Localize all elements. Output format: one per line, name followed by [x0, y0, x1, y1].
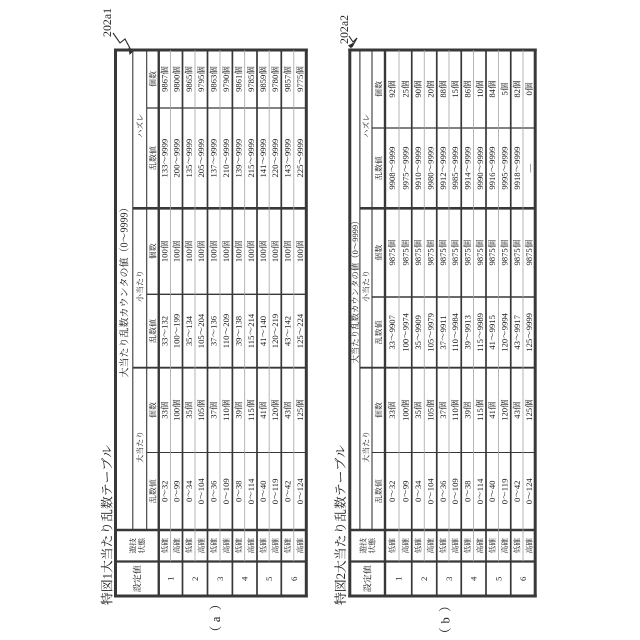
svg-text:37: 37: [438, 340, 448, 349]
svg-text:9916: 9916: [487, 172, 497, 190]
svg-text:9865: 9865: [184, 75, 194, 92]
svg-text:199: 199: [172, 314, 182, 327]
svg-text:36: 36: [438, 480, 448, 489]
svg-text:1: 1: [393, 577, 403, 581]
svg-text:120: 120: [270, 335, 280, 348]
svg-text:119: 119: [270, 479, 280, 492]
svg-text:41: 41: [258, 338, 268, 347]
svg-text:40: 40: [487, 481, 497, 490]
svg-text:9795: 9795: [196, 75, 206, 92]
svg-text:35: 35: [413, 410, 423, 419]
svg-text:0: 0: [462, 498, 472, 502]
svg-text:134: 134: [184, 315, 194, 329]
svg-text:9999: 9999: [450, 147, 460, 164]
svg-text:0: 0: [475, 500, 485, 504]
svg-text:220: 220: [270, 165, 280, 178]
svg-text:104: 104: [426, 478, 436, 492]
svg-text:34: 34: [184, 480, 194, 489]
svg-text:9867: 9867: [160, 74, 170, 92]
svg-text:92: 92: [387, 89, 397, 98]
svg-text:0: 0: [387, 498, 397, 502]
svg-text:5: 5: [493, 576, 503, 581]
svg-text:100: 100: [295, 249, 305, 262]
svg-text:125: 125: [524, 408, 534, 421]
svg-text:9861: 9861: [234, 75, 244, 92]
svg-text:2: 2: [334, 573, 348, 579]
svg-text:b: b: [439, 617, 453, 623]
svg-text:82: 82: [512, 89, 522, 98]
svg-text:35: 35: [184, 410, 194, 419]
svg-text:39: 39: [462, 341, 472, 350]
svg-text:9910: 9910: [413, 172, 423, 189]
svg-text:9999: 9999: [160, 139, 170, 156]
svg-text:9999: 9999: [283, 139, 293, 156]
svg-text:138: 138: [234, 316, 244, 329]
svg-text:9875: 9875: [387, 248, 397, 265]
svg-text:2: 2: [190, 577, 200, 581]
svg-text:99: 99: [172, 481, 182, 490]
svg-text:9974: 9974: [400, 312, 410, 330]
svg-text:9999: 9999: [475, 147, 485, 164]
svg-text:9999: 9999: [500, 147, 510, 164]
svg-text:15: 15: [450, 89, 460, 98]
svg-text:9999: 9999: [462, 147, 472, 164]
svg-text:37: 37: [438, 409, 448, 418]
svg-text:9875: 9875: [512, 248, 522, 265]
svg-text:100: 100: [283, 249, 293, 262]
svg-text:100: 100: [246, 249, 256, 262]
svg-text:100: 100: [209, 249, 219, 262]
svg-text:9985: 9985: [450, 172, 460, 189]
svg-text:100: 100: [172, 249, 182, 262]
svg-text:0: 0: [512, 498, 522, 502]
svg-text:9980: 9980: [426, 172, 436, 189]
svg-text:43: 43: [512, 341, 522, 350]
svg-text:209: 209: [221, 314, 231, 327]
svg-text:43: 43: [283, 410, 293, 419]
svg-text:142: 142: [283, 316, 293, 329]
svg-text:9999: 9999: [221, 139, 231, 156]
svg-text:0: 0: [524, 500, 534, 504]
svg-text:9999: 9999: [120, 213, 131, 233]
svg-text:0: 0: [184, 498, 194, 502]
svg-text:115: 115: [475, 339, 485, 352]
svg-text:39: 39: [462, 410, 472, 419]
svg-text:100: 100: [172, 335, 182, 348]
svg-text:110: 110: [450, 408, 460, 421]
svg-text:9984: 9984: [450, 312, 460, 330]
svg-text:41: 41: [487, 410, 497, 419]
svg-text:120: 120: [270, 408, 280, 421]
svg-text:214: 214: [246, 313, 256, 327]
svg-text:115: 115: [246, 336, 256, 349]
svg-text:9917: 9917: [512, 314, 522, 332]
svg-text:88: 88: [438, 89, 448, 98]
svg-text:9995: 9995: [500, 172, 510, 189]
svg-text:6: 6: [518, 576, 528, 581]
svg-text:215: 215: [246, 165, 256, 178]
svg-text:0: 0: [295, 500, 305, 504]
svg-text:9875: 9875: [524, 248, 534, 265]
svg-text:3: 3: [215, 576, 225, 581]
svg-text:9999: 9999: [524, 313, 534, 330]
svg-text:32: 32: [160, 481, 170, 490]
svg-text:41: 41: [487, 341, 497, 350]
svg-text:0: 0: [234, 498, 244, 502]
svg-text:0: 0: [450, 500, 460, 504]
svg-text:204: 204: [196, 313, 206, 327]
svg-text:9863: 9863: [209, 75, 219, 92]
svg-text:9875: 9875: [413, 248, 423, 265]
svg-text:33: 33: [160, 338, 170, 347]
svg-text:9875: 9875: [450, 248, 460, 265]
svg-text:a: a: [209, 616, 223, 622]
svg-text:0: 0: [524, 91, 534, 95]
svg-text:32: 32: [387, 481, 397, 490]
svg-text:109: 109: [450, 478, 460, 491]
svg-text:42: 42: [283, 481, 293, 490]
svg-text:200: 200: [172, 165, 182, 178]
svg-text:9908: 9908: [387, 172, 397, 189]
svg-text:33: 33: [387, 410, 397, 419]
svg-text:224: 224: [295, 313, 305, 327]
svg-text:110: 110: [221, 336, 231, 349]
svg-text:115: 115: [246, 408, 256, 421]
svg-text:114: 114: [246, 478, 256, 491]
svg-text:9909: 9909: [413, 315, 423, 332]
svg-text:0: 0: [120, 243, 131, 248]
svg-text:210: 210: [221, 165, 231, 178]
svg-text:104: 104: [196, 478, 206, 492]
svg-text:9875: 9875: [400, 248, 410, 265]
svg-text:133: 133: [160, 165, 170, 178]
svg-text:0: 0: [351, 250, 360, 254]
svg-text:139: 139: [234, 165, 244, 178]
svg-text:4: 4: [240, 576, 250, 581]
svg-text:—: —: [524, 163, 534, 173]
svg-text:9775: 9775: [295, 75, 305, 92]
svg-text:37: 37: [209, 337, 219, 346]
svg-text:9907: 9907: [387, 314, 397, 332]
svg-text:205: 205: [196, 165, 206, 178]
svg-text:37: 37: [209, 409, 219, 418]
svg-text:114: 114: [475, 478, 485, 491]
svg-text:9913: 9913: [462, 315, 472, 332]
svg-text:100: 100: [172, 408, 182, 421]
svg-text:9999: 9999: [387, 147, 397, 164]
svg-text:9780: 9780: [270, 75, 280, 92]
svg-text:35: 35: [413, 341, 423, 350]
svg-text:143: 143: [283, 165, 293, 178]
svg-text:9918: 9918: [512, 172, 522, 189]
svg-text:25: 25: [400, 89, 410, 98]
svg-text:119: 119: [500, 479, 510, 492]
svg-text:9999: 9999: [196, 139, 206, 156]
svg-text:9990: 9990: [475, 172, 485, 189]
svg-text:100: 100: [196, 249, 206, 262]
svg-text:9859: 9859: [258, 75, 268, 92]
svg-text:0: 0: [413, 498, 423, 502]
svg-text:9979: 9979: [426, 313, 436, 330]
svg-text:110: 110: [221, 408, 231, 421]
svg-text:9975: 9975: [400, 172, 410, 189]
svg-text:33: 33: [160, 410, 170, 419]
svg-text:2: 2: [419, 577, 429, 581]
svg-text:120: 120: [500, 408, 510, 421]
svg-text:43: 43: [283, 338, 293, 347]
svg-text:0: 0: [426, 500, 436, 504]
svg-text:100: 100: [184, 249, 194, 262]
svg-text:105: 105: [426, 339, 436, 352]
svg-text:9999: 9999: [172, 139, 182, 156]
svg-text:100: 100: [160, 249, 170, 262]
svg-text:41: 41: [258, 410, 268, 419]
svg-text:10: 10: [475, 89, 485, 98]
svg-text:125: 125: [295, 335, 305, 348]
svg-text:0: 0: [160, 498, 170, 502]
svg-text:100: 100: [270, 249, 280, 262]
svg-text:9790: 9790: [221, 75, 231, 92]
svg-text:219: 219: [270, 314, 280, 327]
svg-text:6: 6: [289, 576, 299, 581]
svg-text:202a2: 202a2: [337, 15, 351, 44]
svg-text:9857: 9857: [283, 74, 293, 92]
svg-text:100: 100: [400, 408, 410, 421]
svg-text:124: 124: [524, 478, 534, 492]
svg-text:125: 125: [295, 408, 305, 421]
svg-text:9999: 9999: [246, 139, 256, 156]
svg-text:9912: 9912: [438, 172, 448, 189]
svg-text:40: 40: [258, 481, 268, 490]
svg-text:39: 39: [234, 410, 244, 419]
svg-text:140: 140: [258, 316, 268, 329]
svg-text:35: 35: [184, 338, 194, 347]
svg-text:9999: 9999: [209, 139, 219, 156]
svg-text:5: 5: [500, 91, 510, 95]
svg-text:9800: 9800: [172, 75, 182, 92]
svg-text:9875: 9875: [426, 248, 436, 265]
svg-text:1: 1: [101, 573, 115, 579]
svg-text:9999: 9999: [184, 139, 194, 156]
svg-text:135: 135: [184, 165, 194, 178]
svg-text:105: 105: [426, 408, 436, 421]
svg-text:105: 105: [196, 335, 206, 348]
svg-text:90: 90: [413, 89, 423, 98]
svg-text:20: 20: [426, 89, 436, 98]
svg-text:9999: 9999: [258, 139, 268, 156]
svg-text:9914: 9914: [462, 172, 472, 190]
svg-text:105: 105: [196, 408, 206, 421]
svg-text:100: 100: [258, 249, 268, 262]
svg-text:100: 100: [234, 249, 244, 262]
svg-text:9999: 9999: [234, 139, 244, 156]
svg-text:137: 137: [209, 164, 219, 178]
svg-text:99: 99: [400, 481, 410, 490]
svg-text:120: 120: [500, 339, 510, 352]
svg-text:9994: 9994: [500, 312, 510, 330]
svg-text:9875: 9875: [475, 248, 485, 265]
svg-text:9875: 9875: [500, 248, 510, 265]
svg-text:34: 34: [413, 480, 423, 489]
svg-text:0: 0: [258, 498, 268, 502]
svg-text:9999: 9999: [295, 139, 305, 156]
svg-text:124: 124: [295, 478, 305, 492]
svg-text:84: 84: [487, 88, 497, 97]
svg-text:42: 42: [512, 481, 522, 490]
svg-text:141: 141: [258, 165, 268, 178]
svg-text:3: 3: [444, 576, 454, 581]
svg-text:225: 225: [295, 165, 305, 178]
svg-text:132: 132: [160, 316, 170, 329]
svg-text:115: 115: [475, 408, 485, 421]
svg-text:9999: 9999: [351, 225, 360, 242]
svg-text:100: 100: [221, 249, 231, 262]
svg-text:9999: 9999: [413, 147, 423, 164]
svg-text:0: 0: [400, 498, 410, 502]
svg-text:0: 0: [487, 498, 497, 502]
svg-text:38: 38: [462, 481, 472, 490]
svg-text:9999: 9999: [270, 139, 280, 156]
svg-text:0: 0: [283, 498, 293, 502]
svg-text:9785: 9785: [246, 75, 256, 92]
svg-text:0: 0: [438, 498, 448, 502]
svg-text:9999: 9999: [512, 147, 522, 164]
svg-text:125: 125: [524, 339, 534, 352]
svg-text:9915: 9915: [487, 315, 497, 332]
svg-text:100: 100: [400, 339, 410, 352]
svg-text:136: 136: [209, 315, 219, 329]
svg-text:39: 39: [234, 338, 244, 347]
svg-text:0: 0: [196, 500, 206, 504]
svg-text:33: 33: [387, 341, 397, 350]
svg-text:9875: 9875: [438, 248, 448, 265]
svg-text:4: 4: [469, 576, 479, 581]
svg-text:202a1: 202a1: [100, 8, 114, 37]
svg-text:1: 1: [166, 577, 176, 581]
svg-text:36: 36: [209, 480, 219, 489]
svg-text:9875: 9875: [487, 248, 497, 265]
svg-text:5: 5: [264, 576, 274, 581]
svg-text:9999: 9999: [487, 147, 497, 164]
svg-text:86: 86: [462, 88, 472, 97]
svg-text:0: 0: [246, 500, 256, 504]
svg-text:0: 0: [270, 500, 280, 504]
svg-text:43: 43: [512, 410, 522, 419]
svg-text:9911: 9911: [438, 315, 448, 332]
svg-text:0: 0: [500, 500, 510, 504]
svg-text:9875: 9875: [462, 248, 472, 265]
svg-text:38: 38: [234, 481, 244, 490]
svg-text:109: 109: [221, 478, 231, 491]
svg-text:110: 110: [450, 339, 460, 352]
svg-text:9999: 9999: [426, 147, 436, 164]
svg-text:9999: 9999: [438, 147, 448, 164]
svg-text:0: 0: [221, 500, 231, 504]
svg-text:9999: 9999: [400, 147, 410, 164]
svg-text:9989: 9989: [475, 313, 485, 330]
svg-text:0: 0: [209, 498, 219, 502]
svg-text:0: 0: [172, 498, 182, 502]
